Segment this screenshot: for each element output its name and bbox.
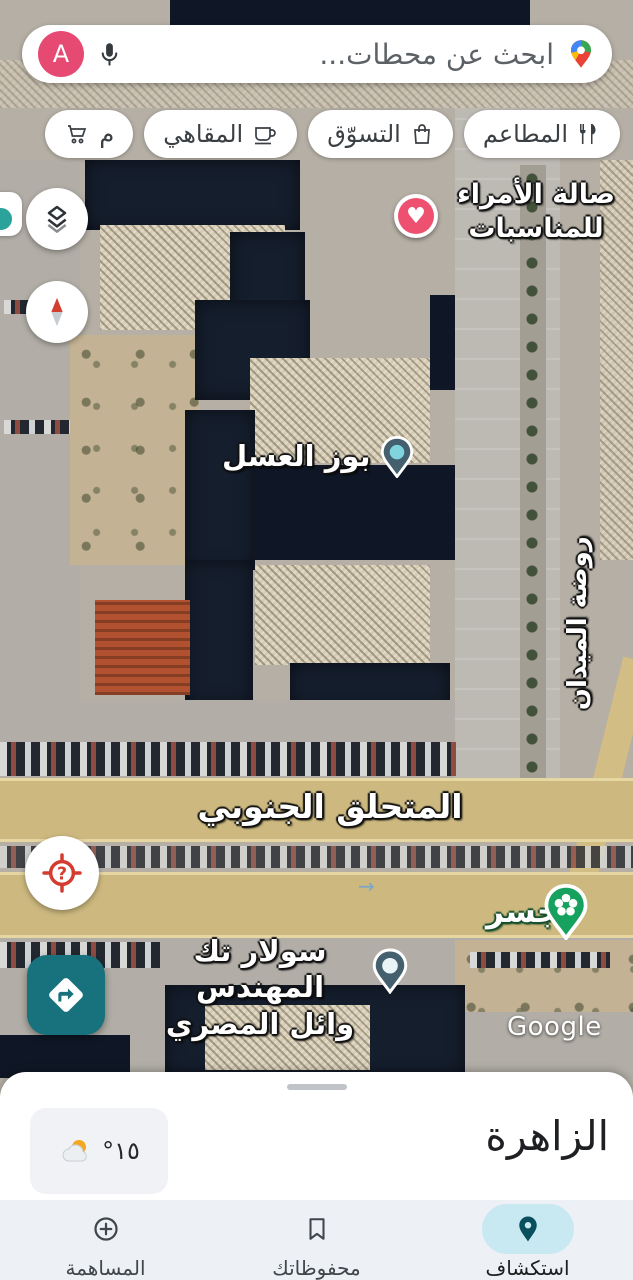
google-maps-app: → صالة الأمراء للمناسبات بوز العسل روضة … — [0, 0, 633, 1280]
poi-label-hall[interactable]: صالة الأمراء للمناسبات — [438, 178, 633, 246]
active-tab-pill — [482, 1204, 574, 1254]
tab-contribute[interactable]: المساهمة — [0, 1200, 211, 1280]
directions-fab[interactable] — [27, 955, 105, 1035]
plus-circle-icon — [92, 1215, 120, 1243]
place-title: الزاهرة — [485, 1112, 609, 1160]
microphone-icon[interactable] — [96, 41, 123, 68]
chip-groceries-partial[interactable]: م — [45, 110, 133, 158]
my-location-button[interactable]: ? — [25, 836, 99, 910]
google-watermark: Google — [507, 1012, 602, 1042]
svg-text:?: ? — [57, 865, 67, 885]
google-maps-pin-icon — [566, 39, 596, 69]
layers-button[interactable] — [26, 188, 88, 250]
explore-pin-icon — [513, 1214, 543, 1244]
poi-label-honey[interactable]: بوز العسل — [222, 438, 378, 474]
grocery-cart-icon — [64, 122, 90, 146]
bottom-sheet[interactable]: الزاهرة °١٥ — [0, 1072, 633, 1200]
favorite-heart-pin-icon[interactable]: ♥ — [394, 194, 438, 238]
shopping-bag-icon — [410, 122, 434, 146]
sun-behind-cloud-icon — [58, 1136, 94, 1166]
highway-label: المتحلق الجنوبي — [140, 786, 520, 827]
bookmark-icon — [304, 1216, 330, 1242]
coffee-cup-icon — [252, 122, 278, 146]
poi-label-solar[interactable]: سولار تك المهندس وائل المصري — [150, 933, 370, 1042]
bottom-navigation: استكشاف محفوظاتك المساهمة — [0, 1200, 633, 1280]
poi-dot-pin-icon[interactable] — [372, 948, 408, 994]
location-question-icon: ? — [40, 851, 84, 895]
park-pin-icon[interactable] — [543, 884, 589, 940]
search-bar[interactable]: ابحث عن محطات... A — [22, 25, 612, 83]
street-label-vertical: روضة الميدان — [562, 488, 595, 758]
tab-saved[interactable]: محفوظاتك — [211, 1200, 422, 1280]
directions-icon — [43, 972, 89, 1018]
chip-shopping[interactable]: التسوّق — [308, 110, 453, 158]
search-input[interactable]: ابحث عن محطات... — [135, 38, 554, 71]
tab-explore[interactable]: استكشاف — [422, 1200, 633, 1280]
poi-dot-pin-icon[interactable] — [380, 436, 414, 478]
category-chip-row: المطاعم التسوّق المقاهي م — [0, 110, 633, 158]
weather-widget[interactable]: °١٥ — [30, 1108, 168, 1194]
layers-icon — [41, 203, 73, 235]
temperature-value: °١٥ — [102, 1137, 140, 1165]
compass-button[interactable] — [26, 281, 88, 343]
drag-handle[interactable] — [287, 1084, 347, 1090]
chip-cafes[interactable]: المقاهي — [144, 110, 297, 158]
lane-arrow: → — [358, 880, 384, 892]
chip-restaurants[interactable]: المطاعم — [464, 110, 620, 158]
restaurants-icon — [577, 122, 601, 146]
compass-needle-icon — [40, 295, 74, 329]
account-avatar[interactable]: A — [38, 31, 84, 77]
